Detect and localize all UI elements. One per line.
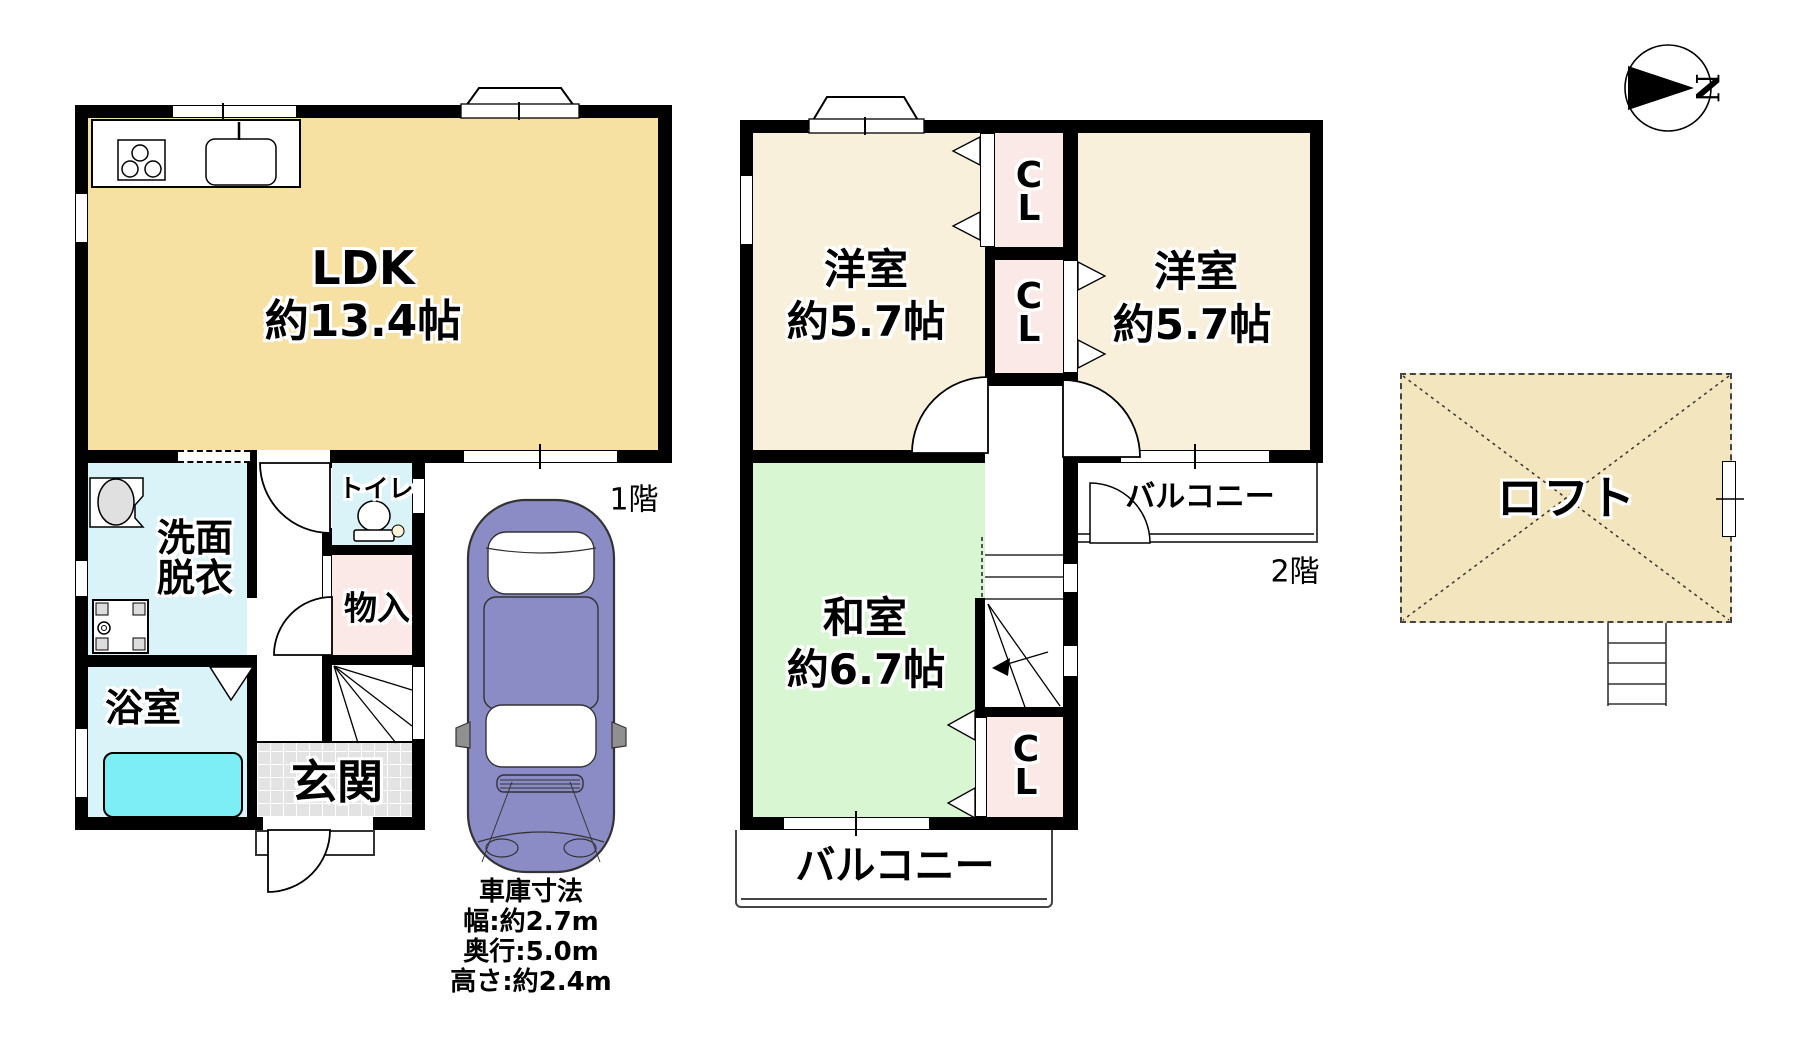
wall [1063, 120, 1078, 260]
wall [322, 655, 332, 743]
hall-door-opening [257, 450, 330, 463]
toilet-door [322, 468, 332, 528]
washroom-label: 洗面 脱衣 [157, 519, 233, 599]
entrance-label: 玄関 [291, 758, 383, 806]
wall [985, 247, 1078, 260]
car-hood-vent [497, 775, 583, 792]
stairs-window [412, 666, 425, 740]
japanese-room-name-label: 和室 [823, 596, 907, 640]
wall [740, 450, 985, 463]
washroom-label-line1: 洗面 [157, 519, 233, 559]
wall [975, 598, 985, 710]
stairs-1f [334, 666, 412, 743]
left-window-2f [740, 175, 753, 245]
wall [658, 105, 672, 463]
ldk-size-label: 約13.4帖 [265, 299, 462, 345]
japanese-room-size-label: 約6.7帖 [787, 648, 945, 692]
wall [1063, 533, 1078, 717]
dashed-partition [178, 450, 250, 463]
western-right-size-label: 約5.7帖 [1113, 303, 1271, 347]
wall [740, 120, 1323, 133]
wall [322, 545, 422, 555]
closet2-label: CL [1008, 280, 1050, 346]
closet2-door [1063, 260, 1078, 373]
western-left-name-label: 洋室 [824, 248, 908, 292]
bathtub [103, 752, 243, 818]
garage-height: 高さ:約2.4m [450, 968, 612, 998]
window-tick [855, 811, 857, 836]
car-mirror-right [612, 722, 626, 748]
garage-depth: 奥行:5.0m [450, 938, 612, 968]
loft-ladder [1608, 623, 1666, 706]
wall [75, 105, 672, 118]
wall [322, 655, 422, 665]
left-window-3 [75, 728, 88, 798]
floor2-label: 2階 [1270, 556, 1319, 588]
closet1-label: CL [1008, 159, 1050, 225]
washroom-door [247, 598, 257, 655]
western-left-size-label: 約5.7帖 [787, 300, 945, 344]
compass-icon: N [1625, 45, 1726, 131]
balcony-bottom-inner-line [741, 898, 1047, 900]
wall [985, 373, 1078, 386]
stairs-arrow [992, 658, 1010, 676]
toilet-window [412, 478, 425, 514]
wall [1310, 120, 1323, 463]
entrance-step-line [257, 741, 412, 743]
car-roof [484, 597, 598, 709]
loft-window [1722, 461, 1736, 537]
floor-plan-canvas: N LDK 約13.4帖 洗面 脱衣 トイレ 物入 浴室 玄関 1階 車庫寸法 … [0, 0, 1819, 1042]
storage-door [322, 555, 332, 655]
kitchen-window [172, 105, 297, 118]
bathroom-label: 浴室 [105, 689, 181, 729]
car-icon [456, 500, 626, 872]
left-window-2 [75, 560, 88, 597]
balcony-right-label: バルコニー [1125, 481, 1274, 513]
car-mirror-left [456, 722, 470, 748]
stairs-window-2f-1 [1063, 563, 1078, 593]
ldk-name-label: LDK [311, 244, 414, 292]
closet3-door [975, 717, 987, 817]
balcony-bottom-label: バルコニー [795, 845, 994, 887]
door-arc-hall [260, 463, 330, 533]
compass-north-label: N [1688, 73, 1726, 102]
car-rear-window [488, 532, 594, 594]
car-windshield [486, 705, 596, 767]
wall [1063, 457, 1078, 537]
closet1-door [980, 133, 995, 247]
balcony-right-inner-line [1078, 533, 1314, 535]
stairs-window-2f-2 [1063, 645, 1078, 677]
window-tick [539, 444, 541, 469]
wall [247, 655, 257, 830]
wall [975, 707, 1078, 717]
wall [412, 463, 425, 830]
window-tick [1194, 444, 1196, 469]
garage-title: 車庫寸法 [450, 878, 612, 908]
window-tick [222, 103, 224, 120]
wall [985, 260, 995, 373]
floor1-label: 1階 [609, 484, 658, 516]
garage-dimensions: 車庫寸法 幅:約2.7m 奥行:5.0m 高さ:約2.4m [450, 878, 612, 998]
western-right-name-label: 洋室 [1154, 250, 1238, 294]
entrance-door-opening [263, 817, 373, 830]
left-window-1 [75, 193, 88, 243]
car-headlight-left [486, 839, 518, 857]
loft-label: ロフト [1497, 474, 1635, 522]
stairs-2f [982, 537, 1063, 710]
toilet-label: トイレ [338, 476, 413, 502]
closet3-label: CL [1005, 733, 1047, 799]
garage-width: 幅:約2.7m [450, 908, 612, 938]
car-headlight-right [564, 839, 596, 857]
entrance-porch [255, 830, 375, 856]
wall [75, 655, 257, 667]
wall [1063, 717, 1078, 817]
storage-label: 物入 [344, 592, 410, 627]
washroom-label-line2: 脱衣 [157, 559, 233, 599]
